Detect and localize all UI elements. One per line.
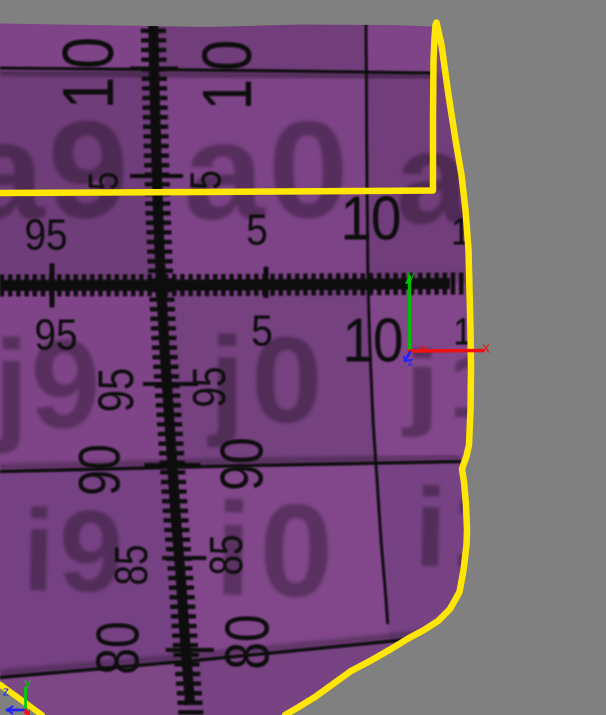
svg-text:10: 10 xyxy=(343,306,404,375)
svg-text:y: y xyxy=(24,675,31,690)
svg-text:z: z xyxy=(3,684,10,699)
svg-text:10: 10 xyxy=(341,184,402,253)
svg-text:90: 90 xyxy=(208,437,275,490)
svg-text:95: 95 xyxy=(24,209,67,259)
svg-text:10: 10 xyxy=(189,32,266,110)
svg-text:y: y xyxy=(407,268,415,285)
svg-text:5: 5 xyxy=(81,172,127,191)
svg-text:80: 80 xyxy=(84,621,151,674)
svg-text:80: 80 xyxy=(212,614,282,669)
svg-text:95: 95 xyxy=(183,367,235,408)
svg-text:a0: a0 xyxy=(182,91,354,248)
svg-text:5: 5 xyxy=(246,204,268,254)
svg-text:95: 95 xyxy=(88,368,144,412)
svg-text:85: 85 xyxy=(200,535,252,576)
svg-text:z: z xyxy=(408,355,414,369)
svg-text:5: 5 xyxy=(182,170,231,190)
svg-text:85: 85 xyxy=(105,545,157,586)
svg-text:90: 90 xyxy=(67,444,132,496)
svg-text:95: 95 xyxy=(34,309,77,359)
svg-text:10: 10 xyxy=(48,29,129,109)
svg-text:5: 5 xyxy=(251,305,273,355)
svg-text:x: x xyxy=(482,340,490,357)
